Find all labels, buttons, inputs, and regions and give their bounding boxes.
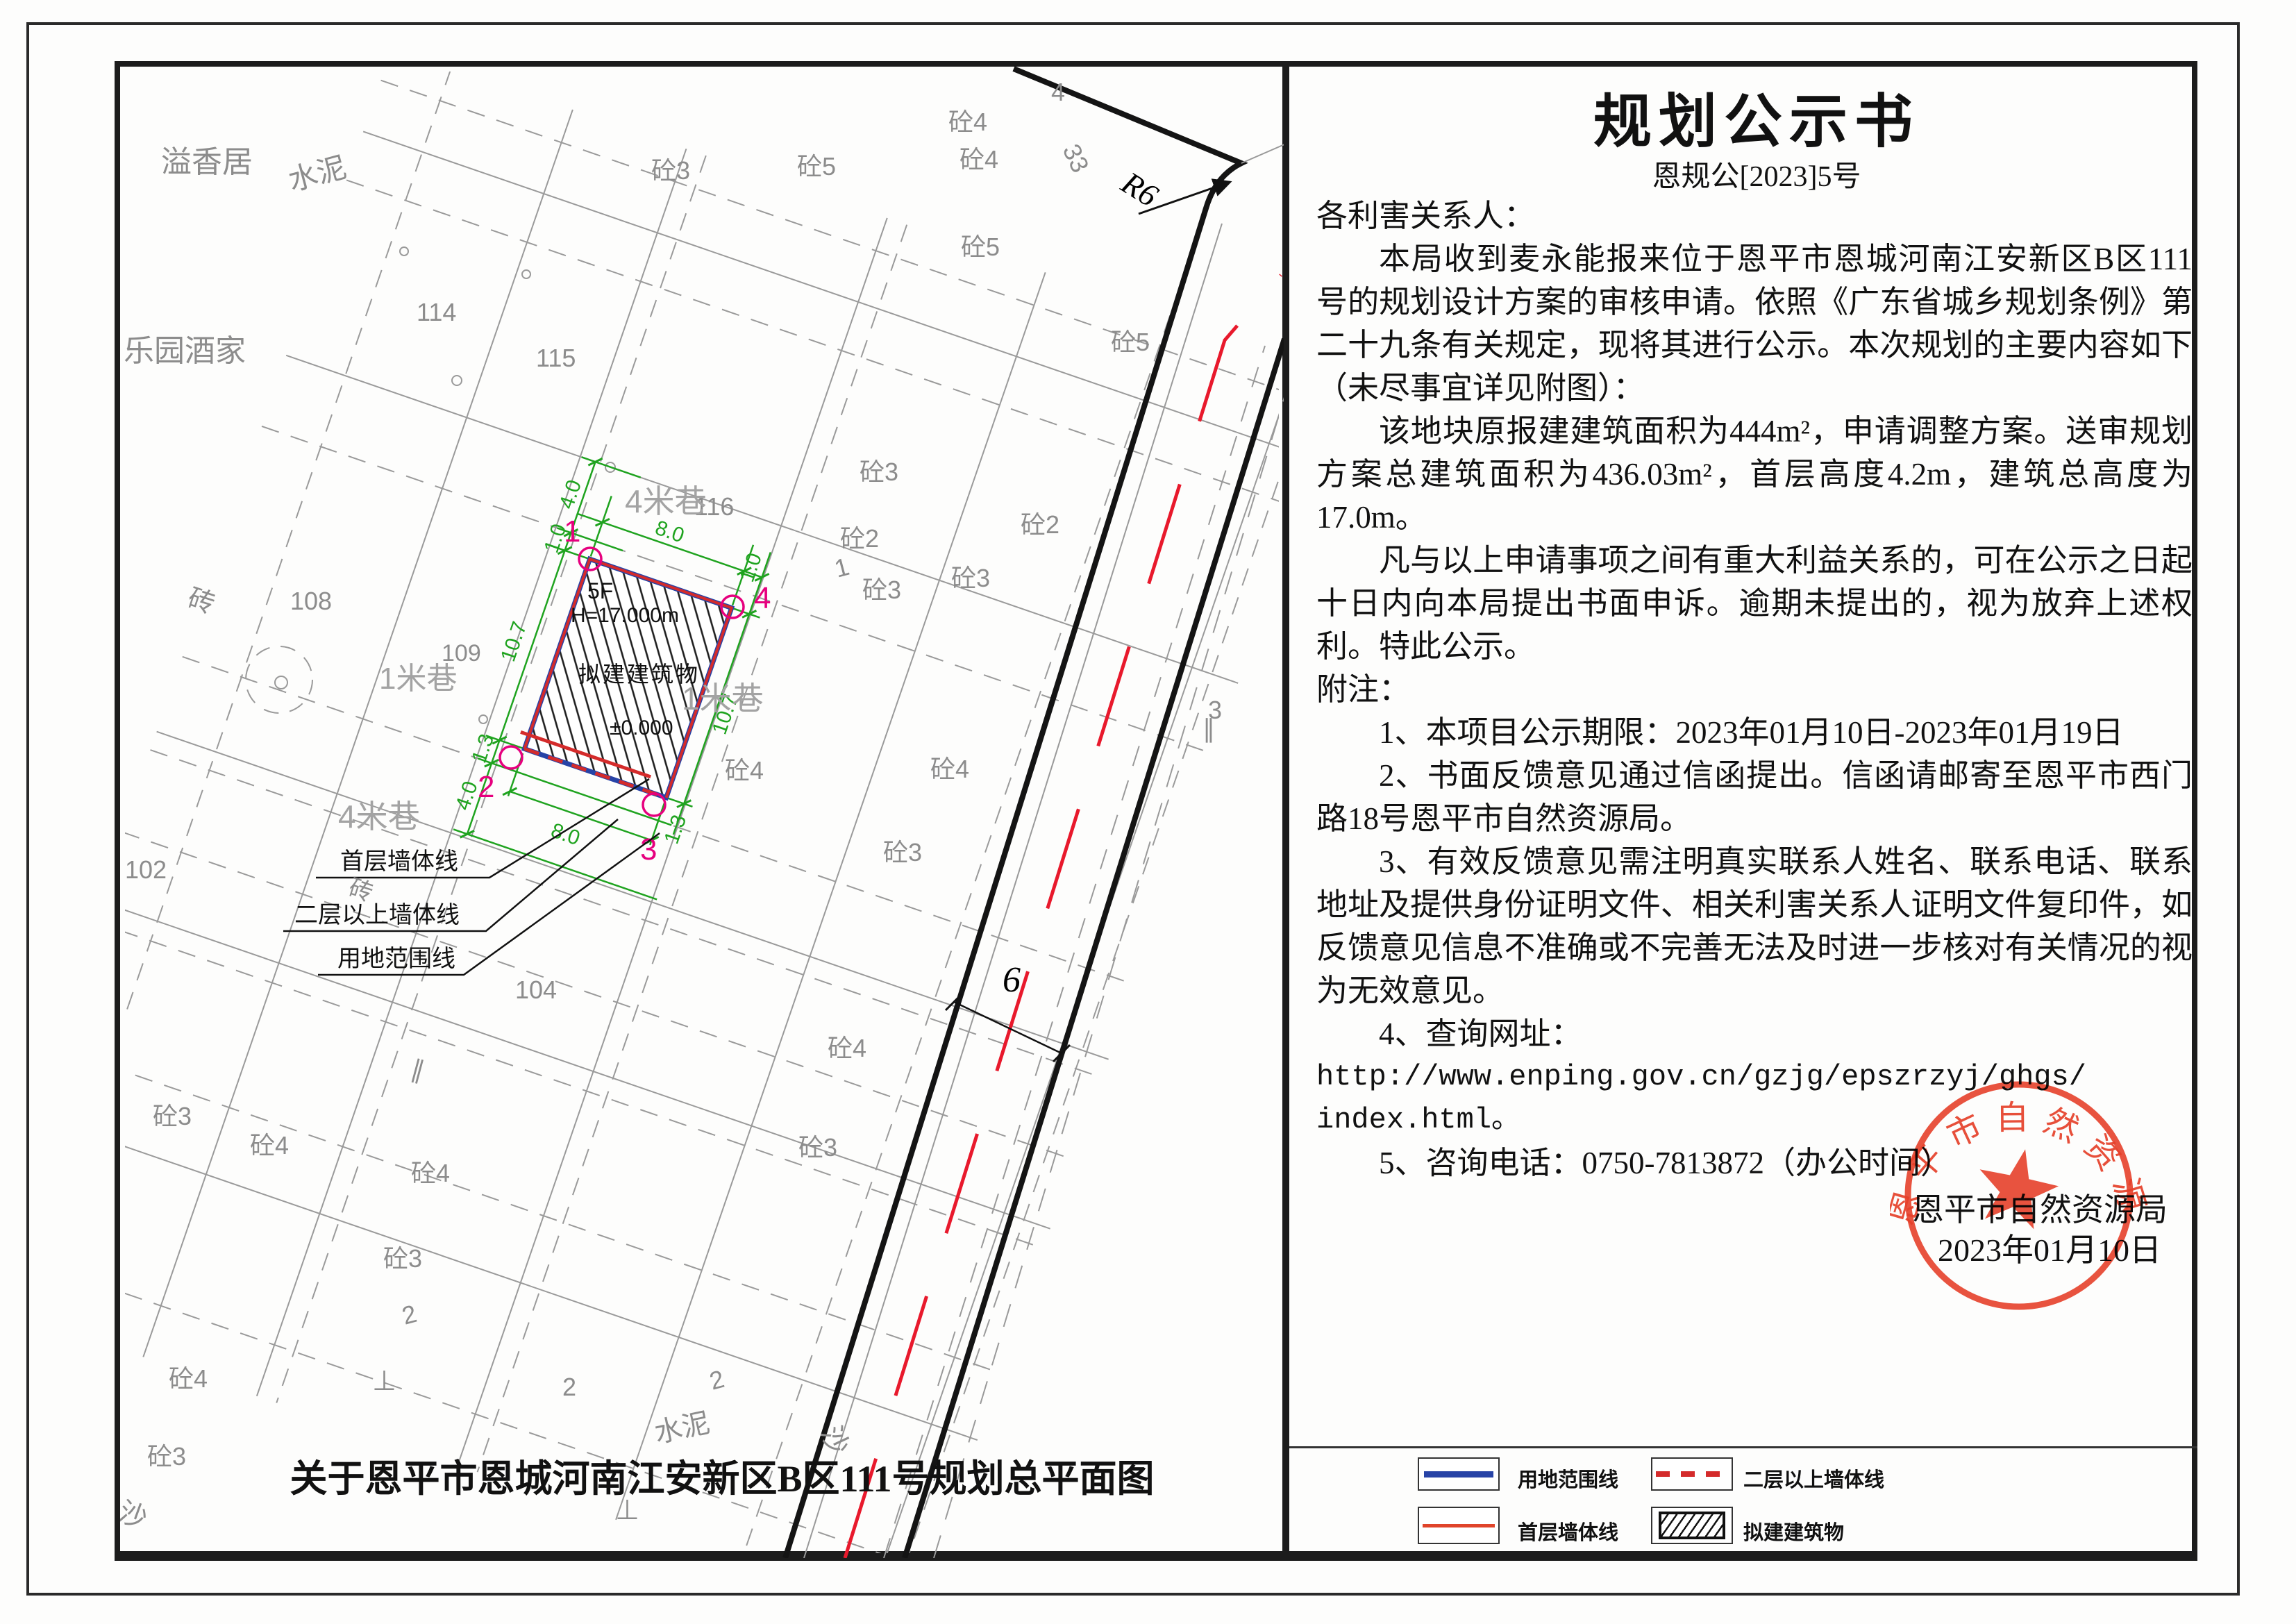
paragraph-1: 本局收到麦永能报来位于恩平市恩城河南江安新区B区111号的规划设计方案的审核申请…	[1316, 237, 2193, 410]
svg-text:∥: ∥	[408, 1054, 428, 1085]
svg-text:砼4: 砼4	[930, 755, 969, 783]
legend-label-proposed-building: 拟建建筑物	[1743, 1516, 1844, 1546]
svg-text:2: 2	[706, 1364, 727, 1396]
svg-text:溢香居: 溢香居	[161, 145, 253, 179]
building-height: H=17.000m	[571, 604, 679, 627]
legend-swatch-first-floor-wall	[1418, 1507, 1500, 1544]
corner-1: 1	[564, 514, 580, 549]
red-dashed-line-icon	[1656, 1471, 1728, 1477]
svg-text:102: 102	[125, 855, 167, 884]
svg-text:砼5: 砼5	[1111, 328, 1150, 356]
svg-text:⊥: ⊥	[372, 1366, 396, 1396]
svg-text:1.3: 1.3	[467, 731, 498, 766]
site-plan-map: 6 R6	[120, 67, 1284, 1558]
svg-text:砼3: 砼3	[651, 156, 690, 185]
svg-text:砼4: 砼4	[169, 1364, 208, 1393]
svg-text:砼5: 砼5	[797, 152, 836, 181]
svg-text:水泥: 水泥	[652, 1407, 712, 1449]
note-2: 2、书面反馈意见通过信函提出。信函请邮寄至恩平市西门路18号恩平市自然资源局。	[1316, 754, 2193, 840]
note-1: 1、本项目公示期限：2023年01月10日-2023年01月19日	[1316, 711, 2193, 754]
svg-text:砼3: 砼3	[383, 1244, 422, 1273]
main-road	[785, 69, 1284, 1558]
red-solid-line-icon	[1423, 1524, 1495, 1527]
salutation: 各利害关系人：	[1316, 194, 2193, 237]
note-4-label: 4、查询网址：	[1316, 1012, 2193, 1055]
svg-text:水泥: 水泥	[285, 151, 349, 197]
svg-text:104: 104	[515, 976, 557, 1004]
svg-text:砼3: 砼3	[951, 564, 990, 592]
svg-text:1: 1	[831, 552, 852, 583]
svg-text:2: 2	[562, 1373, 576, 1401]
svg-text:115: 115	[536, 344, 576, 372]
svg-text:4.0: 4.0	[555, 477, 586, 512]
map-caption: 关于恩平市恩城河南江安新区B区111号规划总平面图	[290, 1458, 1154, 1500]
paragraph-2: 该地块原报建建筑面积为444m²，申请调整方案。送审规划方案总建筑面积为436.…	[1316, 410, 2193, 539]
svg-text:砼4: 砼4	[725, 756, 764, 785]
hatch-box-icon	[1659, 1512, 1725, 1539]
svg-text:砼5: 砼5	[961, 233, 1000, 261]
svg-text:114: 114	[417, 298, 456, 326]
svg-text:砼4: 砼4	[828, 1034, 866, 1062]
legend-divider	[1289, 1446, 2197, 1448]
notice-title: 规划公示书	[1319, 75, 2194, 159]
leader-land-boundary: 用地范围线	[337, 946, 455, 972]
planning-notice-sheet: 6 R6	[0, 0, 2296, 1624]
building-level-zero: ±0.000	[610, 717, 673, 739]
radius-label: R6	[1115, 165, 1164, 214]
legend-label-land-boundary: 用地范围线	[1518, 1464, 1618, 1493]
road-right-edge	[905, 339, 1284, 1558]
parcel-labels: 溢香居 水泥 乐园酒家 114 115 116 108 109 102 104 …	[120, 78, 1222, 1534]
svg-text:砼3: 砼3	[860, 458, 898, 486]
notice-doc-number: 恩规公[2023]5号	[1319, 153, 2194, 195]
svg-text:砼3: 砼3	[883, 838, 922, 867]
svg-text:砼4: 砼4	[411, 1159, 450, 1187]
notes-label: 附注：	[1316, 668, 2193, 711]
svg-text:砼4: 砼4	[250, 1131, 289, 1160]
legend-label-first-floor-wall: 首层墙体线	[1518, 1516, 1618, 1546]
official-seal: 恩平市自然资源局	[1890, 1069, 2148, 1328]
svg-text:沙: 沙	[120, 1496, 151, 1534]
svg-text:4: 4	[1051, 78, 1065, 106]
parcel-grid	[120, 67, 1284, 1558]
blue-solid-line-icon	[1424, 1471, 1493, 1477]
legend-swatch-upper-wall	[1651, 1457, 1733, 1491]
svg-text:砼2: 砼2	[840, 524, 879, 553]
alley-4m-left: 4米巷	[338, 798, 420, 835]
note-3: 3、有效反馈意见需注明真实联系人姓名、联系电话、联系地址及提供身份证明文件、相关…	[1316, 840, 2193, 1012]
svg-text:1.3: 1.3	[660, 812, 692, 847]
seal-star	[1970, 1141, 2064, 1232]
svg-text:砼3: 砼3	[153, 1102, 192, 1130]
legend-swatch-land-boundary	[1418, 1457, 1500, 1491]
svg-text:2: 2	[399, 1299, 419, 1330]
svg-text:砼3: 砼3	[798, 1133, 837, 1162]
alley-4m-top: 4米巷	[625, 483, 707, 519]
leader-upper-floor-wall: 二层以上墙体线	[294, 902, 460, 928]
svg-text:8.0: 8.0	[652, 517, 687, 548]
paragraph-3: 凡与以上申请事项之间有重大利益关系的，可在公示之日起十日内向本局提出书面申诉。逾…	[1316, 539, 2193, 668]
svg-text:砼4: 砼4	[948, 108, 987, 136]
corner-4: 4	[754, 581, 771, 615]
road-width-label: 6	[1003, 960, 1021, 1000]
svg-text:沙: 沙	[815, 1421, 855, 1459]
corner-2: 2	[478, 770, 494, 804]
building-floors: 5F	[587, 578, 613, 603]
svg-text:砖: 砖	[184, 584, 218, 620]
svg-text:33: 33	[1057, 140, 1095, 177]
svg-text:砼3: 砼3	[147, 1442, 186, 1471]
svg-text:∥: ∥	[1203, 714, 1215, 743]
svg-text:乐园酒家: 乐园酒家	[124, 334, 246, 368]
leader-first-floor-wall: 首层墙体线	[340, 848, 458, 875]
alley-1m-right: 1米巷	[682, 680, 764, 717]
legend-label-upper-wall: 二层以上墙体线	[1743, 1464, 1884, 1493]
svg-text:砼3: 砼3	[862, 576, 901, 604]
road-left-edge	[785, 69, 1241, 1558]
well-circle	[246, 646, 312, 713]
road-centerline	[845, 275, 1281, 1558]
svg-text:砼2: 砼2	[1021, 510, 1059, 539]
alley-1m-left: 1米巷	[379, 662, 457, 696]
legend-swatch-proposed-building	[1651, 1507, 1733, 1544]
notice-body: 各利害关系人： 本局收到麦永能报来位于恩平市恩城河南江安新区B区111号的规划设…	[1316, 194, 2193, 1184]
svg-text:10.7: 10.7	[496, 619, 531, 664]
svg-text:砼4: 砼4	[960, 145, 998, 174]
svg-text:108: 108	[290, 587, 332, 615]
